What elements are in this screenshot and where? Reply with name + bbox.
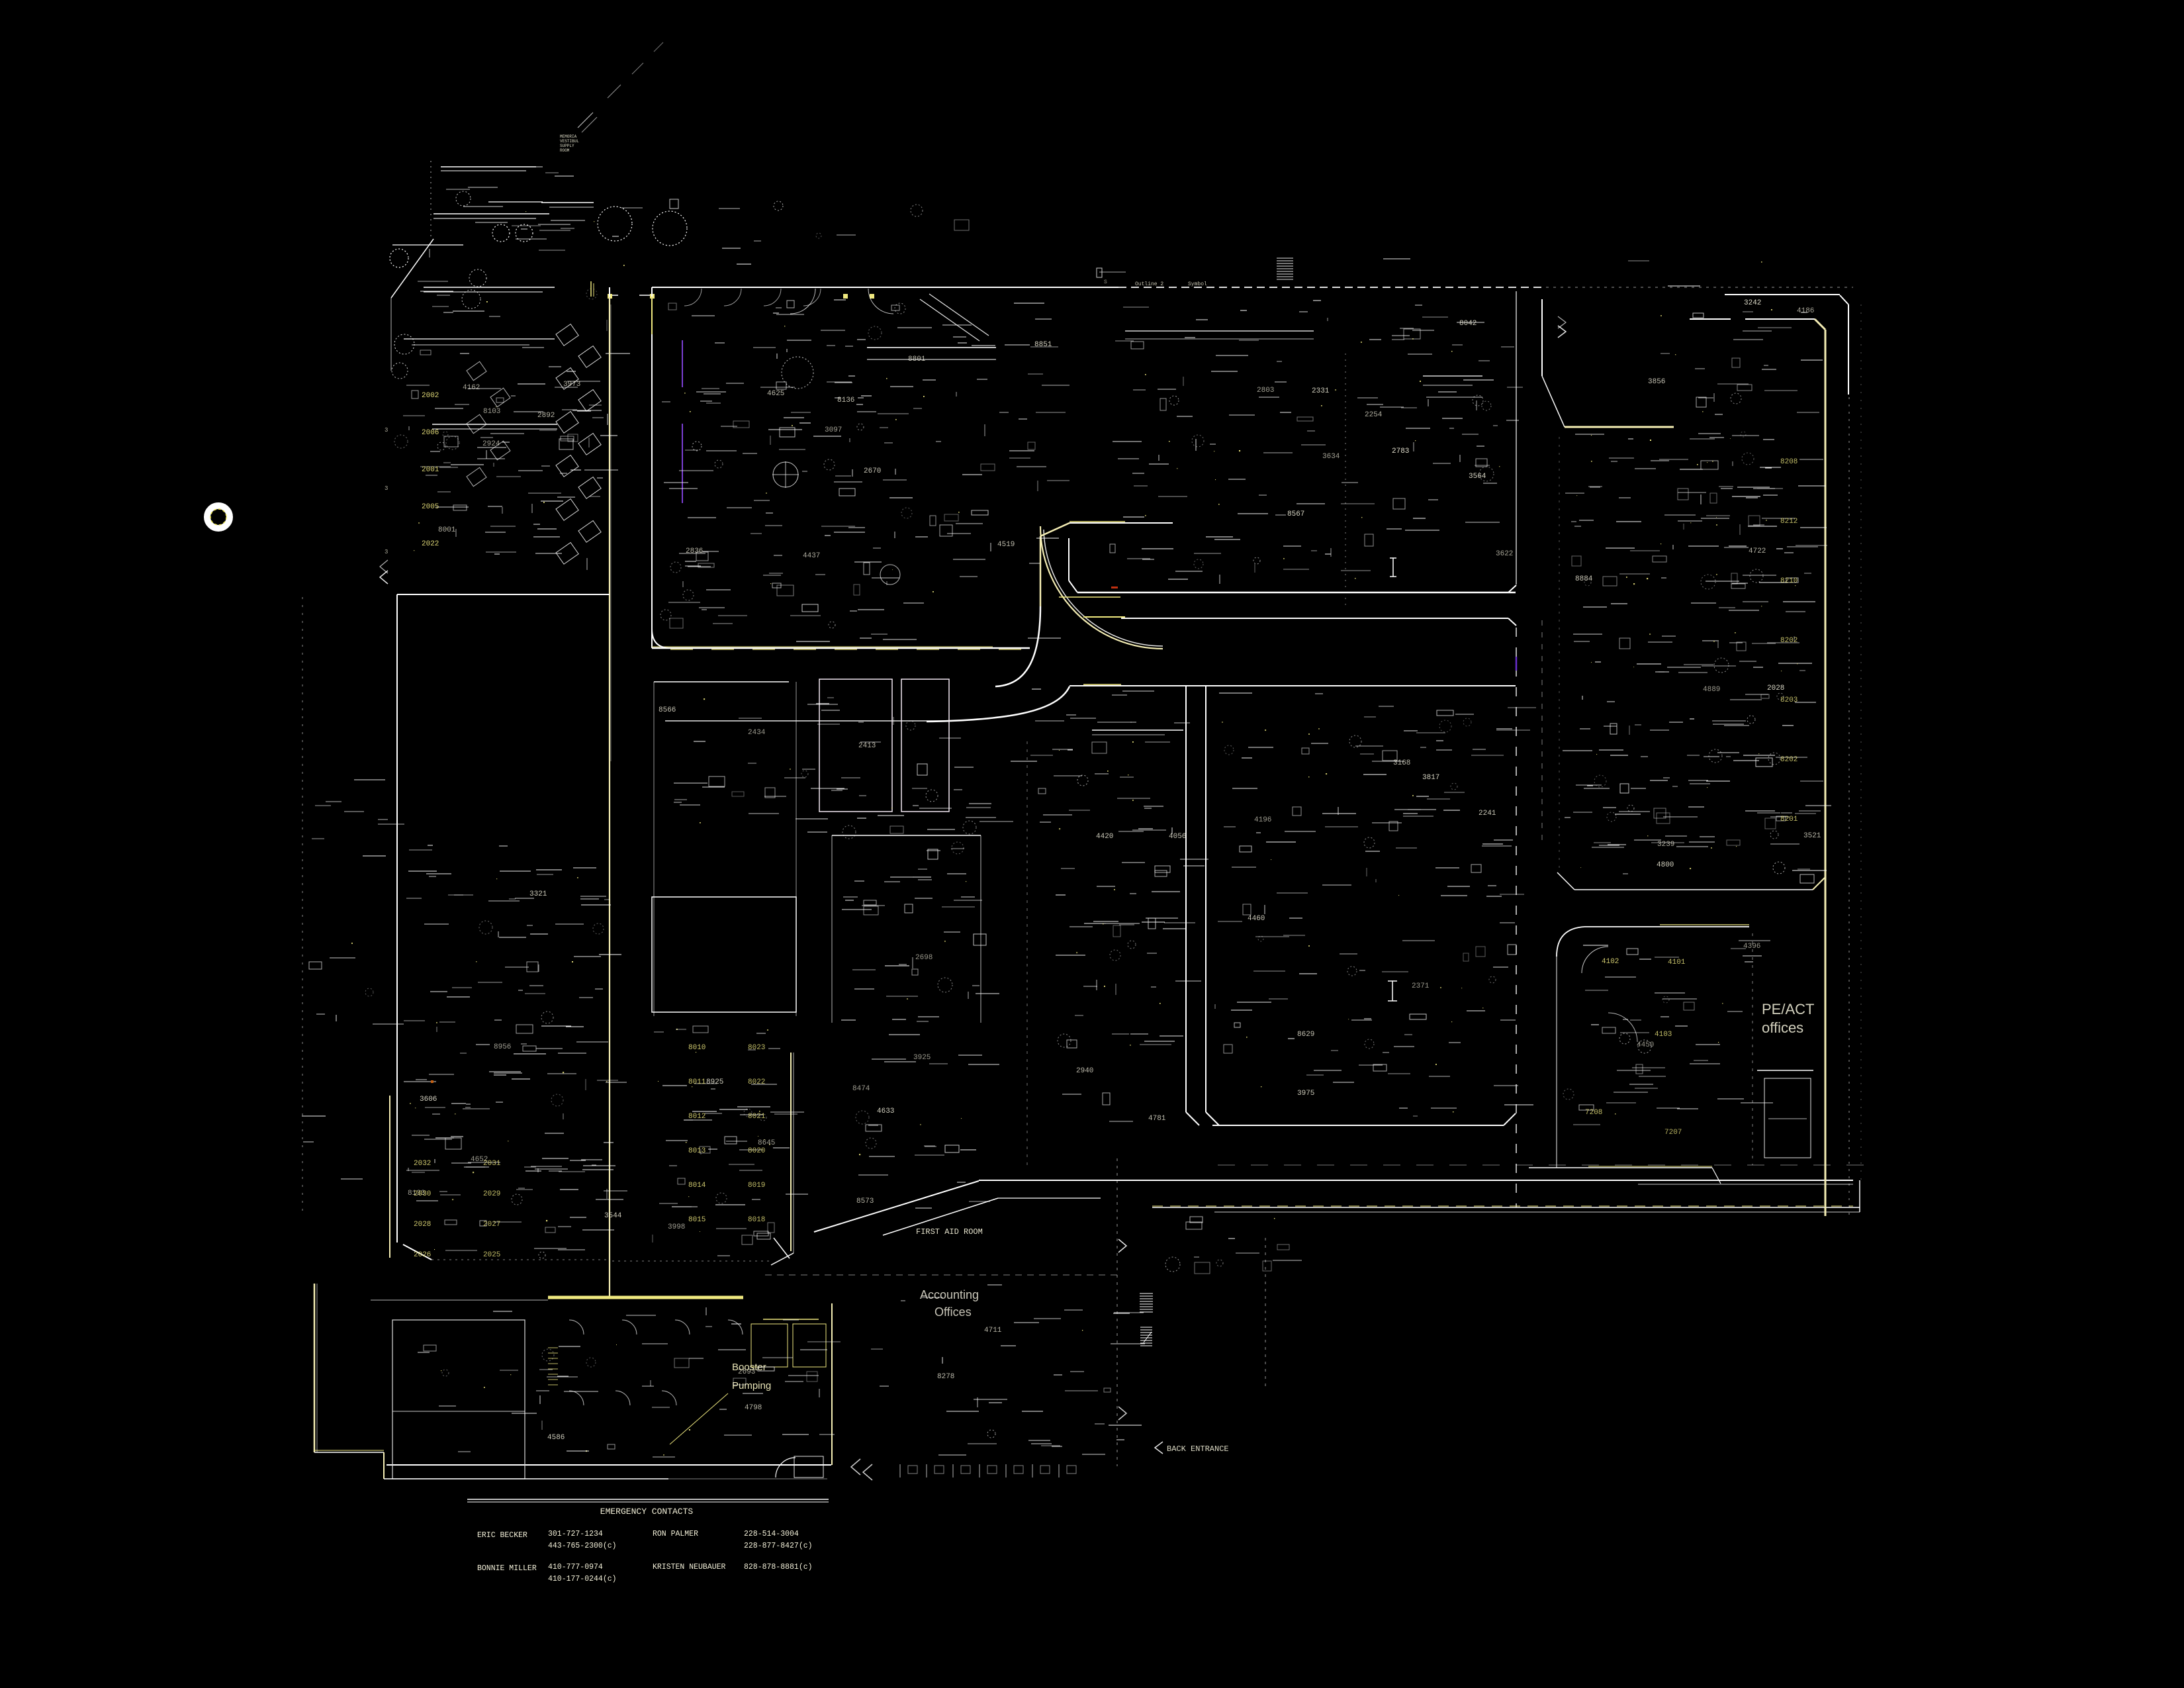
- svg-text:4103: 4103: [1655, 1031, 1672, 1039]
- svg-text:8573: 8573: [856, 1197, 874, 1205]
- svg-text:3856: 3856: [1648, 378, 1665, 386]
- svg-text:3544: 3544: [604, 1212, 622, 1220]
- svg-text:4711: 4711: [984, 1327, 1002, 1335]
- svg-text:3998: 3998: [668, 1223, 685, 1231]
- svg-text:228-514-3004: 228-514-3004: [744, 1530, 799, 1538]
- svg-text:8202: 8202: [1780, 756, 1797, 764]
- svg-text:2693: 2693: [738, 1368, 755, 1376]
- svg-text:4800: 4800: [1657, 861, 1674, 869]
- svg-text:2027: 2027: [483, 1221, 500, 1229]
- svg-text:8021: 8021: [748, 1113, 766, 1121]
- svg-text:2005: 2005: [422, 503, 439, 511]
- svg-text:2028: 2028: [1767, 684, 1784, 692]
- svg-text:8022: 8022: [748, 1078, 765, 1086]
- svg-text:8013: 8013: [688, 1147, 705, 1155]
- svg-text:4196: 4196: [1254, 816, 1271, 824]
- svg-text:2026: 2026: [414, 1251, 431, 1259]
- svg-text:8474: 8474: [852, 1085, 870, 1093]
- svg-text:Pumping: Pumping: [732, 1380, 771, 1391]
- svg-text:4101: 4101: [1668, 959, 1686, 966]
- svg-text:offices: offices: [1762, 1019, 1803, 1036]
- svg-text:8202: 8202: [1780, 637, 1797, 645]
- svg-text:2030: 2030: [414, 1190, 431, 1198]
- svg-text:8208: 8208: [1780, 458, 1797, 466]
- svg-text:301-727-1234: 301-727-1234: [548, 1530, 603, 1538]
- svg-text:2783: 2783: [1392, 447, 1409, 455]
- svg-text:3242: 3242: [1744, 299, 1761, 307]
- svg-text:3: 3: [385, 427, 388, 434]
- svg-text:8015: 8015: [688, 1216, 705, 1224]
- svg-text:3097: 3097: [825, 426, 842, 434]
- svg-text:8019: 8019: [748, 1182, 765, 1190]
- svg-text:2028: 2028: [414, 1221, 431, 1229]
- svg-text:8203: 8203: [1780, 696, 1797, 704]
- svg-text:3521: 3521: [1803, 832, 1821, 840]
- svg-text:8103: 8103: [483, 408, 500, 416]
- svg-text:410-777-0974: 410-777-0974: [548, 1563, 603, 1571]
- svg-text:MEMORIA: MEMORIA: [560, 134, 577, 139]
- svg-text:3564: 3564: [1469, 473, 1486, 481]
- svg-text:8956: 8956: [494, 1043, 511, 1051]
- svg-text:2331: 2331: [1312, 387, 1330, 395]
- svg-text:4586: 4586: [547, 1434, 565, 1442]
- svg-text:2836: 2836: [686, 547, 703, 555]
- svg-text:2924: 2924: [482, 440, 500, 448]
- svg-text:BONNIE MILLER: BONNIE MILLER: [477, 1564, 537, 1573]
- svg-text:828-878-8881(c): 828-878-8881(c): [744, 1563, 813, 1571]
- svg-text:2006: 2006: [422, 429, 439, 437]
- svg-text:4781: 4781: [1148, 1115, 1166, 1123]
- svg-text:3321: 3321: [529, 890, 547, 898]
- svg-text:S: S: [1104, 279, 1107, 285]
- svg-text:Symbol: Symbol: [1188, 281, 1207, 287]
- svg-text:2241: 2241: [1479, 810, 1496, 818]
- svg-text:443-765-2300(c): 443-765-2300(c): [548, 1542, 617, 1550]
- svg-text:2803: 2803: [1257, 387, 1274, 395]
- svg-text:8010: 8010: [688, 1044, 705, 1052]
- svg-text:FIRST AID ROOM: FIRST AID ROOM: [916, 1227, 983, 1237]
- svg-text:8018: 8018: [748, 1216, 765, 1224]
- svg-text:2413: 2413: [858, 742, 876, 750]
- svg-text:2029: 2029: [483, 1190, 500, 1198]
- svg-text:3925: 3925: [913, 1054, 931, 1062]
- svg-text:KRISTEN NEUBAUER: KRISTEN NEUBAUER: [653, 1563, 726, 1571]
- svg-text:4633: 4633: [877, 1107, 894, 1115]
- svg-text:8011: 8011: [688, 1078, 706, 1086]
- svg-text:8278: 8278: [937, 1373, 954, 1381]
- svg-text:7207: 7207: [1664, 1129, 1682, 1137]
- svg-text:EMERGENCY CONTACTS: EMERGENCY CONTACTS: [600, 1507, 694, 1517]
- svg-text:2698: 2698: [915, 954, 933, 962]
- svg-text:3622: 3622: [1496, 550, 1513, 558]
- svg-text:8566: 8566: [659, 706, 676, 714]
- svg-text:2002: 2002: [422, 392, 439, 400]
- svg-text:3606: 3606: [420, 1096, 437, 1103]
- svg-text:4396: 4396: [1743, 943, 1760, 951]
- svg-text:8884: 8884: [1575, 575, 1593, 583]
- svg-text:3239: 3239: [1657, 841, 1674, 849]
- svg-text:4162: 4162: [463, 384, 480, 392]
- svg-text:2371: 2371: [1412, 982, 1430, 990]
- svg-text:8023: 8023: [748, 1044, 765, 1052]
- svg-text:8001: 8001: [438, 526, 456, 534]
- svg-text:BACK ENTRANCE: BACK ENTRANCE: [1167, 1444, 1229, 1454]
- svg-text:2001: 2001: [422, 466, 439, 474]
- svg-text:3: 3: [385, 485, 388, 492]
- svg-text:4186: 4186: [1797, 307, 1814, 315]
- svg-text:2022: 2022: [422, 540, 439, 548]
- svg-text:3168: 3168: [1393, 759, 1410, 767]
- svg-text:8201: 8201: [1780, 816, 1798, 823]
- svg-text:2025: 2025: [483, 1251, 500, 1259]
- svg-text:3975: 3975: [1297, 1090, 1314, 1098]
- svg-text:2254: 2254: [1365, 411, 1383, 419]
- svg-text:2670: 2670: [864, 467, 881, 475]
- svg-text:3634: 3634: [1322, 453, 1340, 461]
- svg-text:4102: 4102: [1602, 958, 1619, 966]
- svg-text:4722: 4722: [1749, 547, 1766, 555]
- svg-text:4056: 4056: [1169, 833, 1186, 841]
- svg-text:8645: 8645: [758, 1139, 775, 1147]
- svg-text:4420: 4420: [1096, 833, 1113, 841]
- svg-text:4519: 4519: [997, 541, 1015, 549]
- svg-text:4437: 4437: [803, 552, 820, 560]
- svg-text:7208: 7208: [1585, 1109, 1602, 1117]
- svg-text:VESTIBUL: VESTIBUL: [560, 139, 579, 144]
- svg-text:2892: 2892: [537, 412, 555, 420]
- svg-text:ERIC BECKER: ERIC BECKER: [477, 1531, 527, 1540]
- svg-text:2940: 2940: [1076, 1067, 1093, 1075]
- svg-text:8851: 8851: [1034, 341, 1052, 349]
- svg-text:4798: 4798: [745, 1404, 762, 1412]
- svg-text:2434: 2434: [748, 729, 766, 737]
- svg-text:8925: 8925: [706, 1078, 723, 1086]
- svg-text:4625: 4625: [767, 390, 784, 398]
- svg-text:8567: 8567: [1287, 510, 1304, 518]
- svg-text:2031: 2031: [483, 1160, 501, 1168]
- svg-text:SUPPLY: SUPPLY: [560, 144, 574, 148]
- svg-text:8212: 8212: [1780, 518, 1797, 526]
- svg-text:Outline 2: Outline 2: [1135, 281, 1163, 287]
- svg-text:PE/ACT: PE/ACT: [1762, 1001, 1814, 1017]
- svg-text:4889: 4889: [1703, 686, 1720, 694]
- svg-text:8210: 8210: [1780, 577, 1797, 585]
- svg-text:RON PALMER: RON PALMER: [653, 1530, 698, 1538]
- svg-text:8014: 8014: [688, 1182, 706, 1190]
- svg-text:8012: 8012: [688, 1113, 705, 1121]
- svg-text:ROOM: ROOM: [560, 148, 570, 153]
- svg-text:228-877-8427(c): 228-877-8427(c): [744, 1542, 813, 1550]
- svg-text:2032: 2032: [414, 1160, 431, 1168]
- svg-text:4460: 4460: [1248, 915, 1265, 923]
- svg-text:8042: 8042: [1459, 320, 1477, 328]
- svg-text:8629: 8629: [1297, 1031, 1314, 1039]
- svg-text:Offices: Offices: [934, 1305, 972, 1319]
- svg-text:410-177-0244(c): 410-177-0244(c): [548, 1575, 617, 1583]
- svg-text:4450: 4450: [1637, 1041, 1654, 1049]
- svg-text:3: 3: [385, 549, 388, 555]
- svg-text:Accounting: Accounting: [920, 1288, 979, 1301]
- svg-text:8020: 8020: [748, 1147, 765, 1155]
- svg-text:3817: 3817: [1422, 774, 1439, 782]
